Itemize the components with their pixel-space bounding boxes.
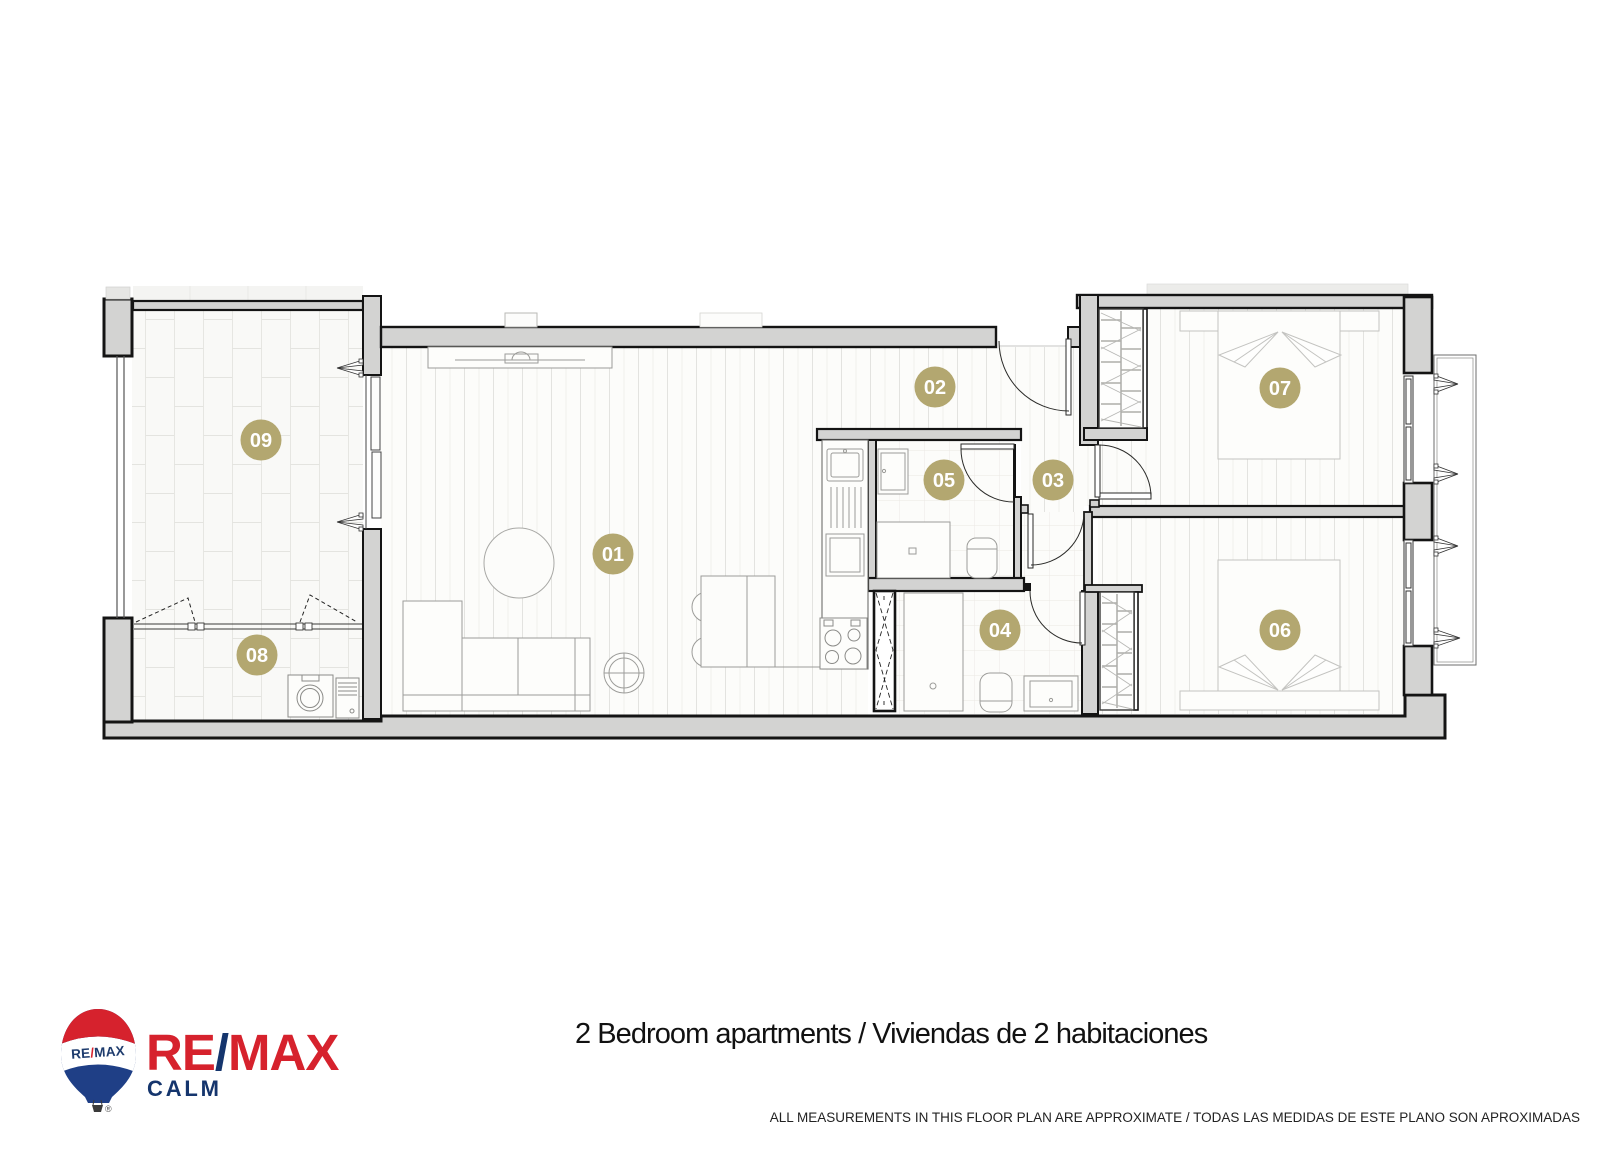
svg-text:06: 06 [1269, 620, 1291, 642]
svg-text:2 Bedroom apartments / Viviend: 2 Bedroom apartments / Viviendas de 2 ha… [575, 1018, 1208, 1050]
svg-text:09: 09 [250, 430, 272, 452]
svg-text:02: 02 [924, 377, 946, 399]
svg-text:01: 01 [602, 544, 624, 566]
svg-text:03: 03 [1042, 470, 1064, 492]
svg-text:04: 04 [989, 620, 1012, 642]
svg-text:RE/MAX: RE/MAX [146, 1024, 339, 1081]
svg-text:08: 08 [246, 645, 268, 667]
svg-text:ALL MEASUREMENTS IN THIS FLOOR: ALL MEASUREMENTS IN THIS FLOOR PLAN ARE … [770, 1110, 1580, 1125]
svg-text:CALM: CALM [147, 1076, 222, 1101]
svg-text:®: ® [105, 1104, 112, 1114]
svg-text:05: 05 [933, 470, 955, 492]
svg-text:07: 07 [1269, 378, 1291, 400]
